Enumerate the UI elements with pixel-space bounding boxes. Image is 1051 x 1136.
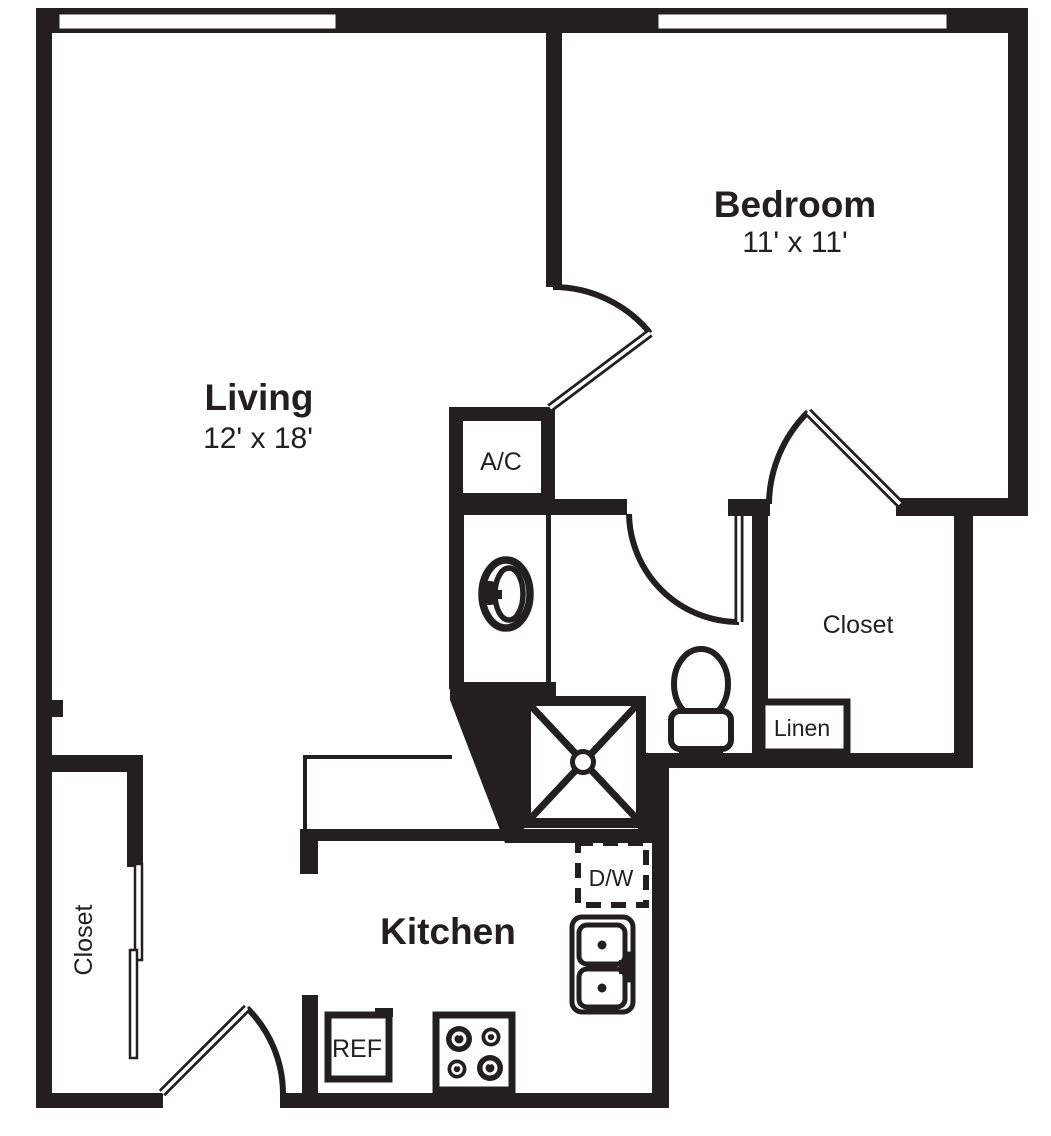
refrigerator-label: REF [332, 1035, 382, 1063]
bedroom-closet-door [769, 412, 900, 504]
wall-kitchen-west-lower [302, 995, 318, 1093]
window-living [58, 13, 337, 30]
vanity-edge [546, 515, 551, 689]
wall-bottom-left [36, 1093, 163, 1108]
sink-faucet-spout [493, 590, 502, 599]
bathroom-sink [479, 560, 530, 628]
wall-bathdoor-stub [728, 499, 770, 516]
counter-band [300, 829, 515, 841]
window-bedroom [657, 13, 948, 30]
toilet-tank [671, 711, 731, 749]
wall-right [1008, 8, 1028, 516]
floor-plan: Living 12' x 18' Bedroom 11' x 11' Kitch… [0, 0, 1051, 1136]
stove [436, 1015, 512, 1090]
kitchen-sink [572, 917, 636, 1012]
living-label: Living [205, 377, 314, 418]
sliding-door-panel [130, 950, 137, 1058]
wall-bottom-right [280, 1093, 669, 1108]
sliding-door-panel [135, 864, 142, 960]
wall-left-stub [52, 700, 63, 717]
toilet [671, 649, 731, 758]
burner [477, 1055, 503, 1081]
kitchen-label: Kitchen [380, 911, 516, 952]
wall-left [36, 8, 52, 1108]
kitchen-faucet-knob [623, 952, 636, 965]
bathroom-door-arc [629, 514, 739, 622]
shower [521, 696, 646, 828]
bedroom-closet-label: Closet [823, 611, 894, 639]
toilet-base [679, 749, 723, 758]
bedroom-closet-door-arc [769, 412, 808, 504]
wall-entrycloset-right [127, 755, 143, 867]
entry-closet-sliding-doors [130, 864, 142, 1058]
stove-outline [436, 1015, 512, 1090]
bedroom-door [550, 287, 650, 408]
shower-drain [573, 752, 594, 773]
kitchen-faucet-knob [623, 970, 636, 983]
bedroom-dimensions: 11' x 11' [742, 226, 847, 259]
wall-living-bedroom [546, 8, 562, 287]
labels: Living 12' x 18' Bedroom 11' x 11' Kitch… [70, 184, 893, 1063]
wall-closet-right [954, 498, 973, 768]
bathroom-door [629, 514, 739, 622]
entry-door [162, 1008, 283, 1093]
linen-label: Linen [774, 715, 830, 741]
sink-drain [598, 941, 607, 950]
bedroom-label: Bedroom [714, 184, 876, 225]
exterior-walls [36, 8, 1028, 1108]
burner [446, 1026, 472, 1052]
dishwasher-label: D/W [589, 865, 634, 891]
burner [482, 1028, 501, 1047]
living-dimensions: 12' x 18' [203, 422, 313, 455]
bedroom-door-arc [553, 287, 650, 333]
wall-bath-left [449, 499, 464, 689]
burner [448, 1060, 467, 1079]
entry-door-arc [247, 1008, 283, 1093]
entry-closet-label: Closet [70, 905, 98, 976]
sink-drain [598, 984, 607, 993]
ac-label: A/C [480, 448, 522, 476]
